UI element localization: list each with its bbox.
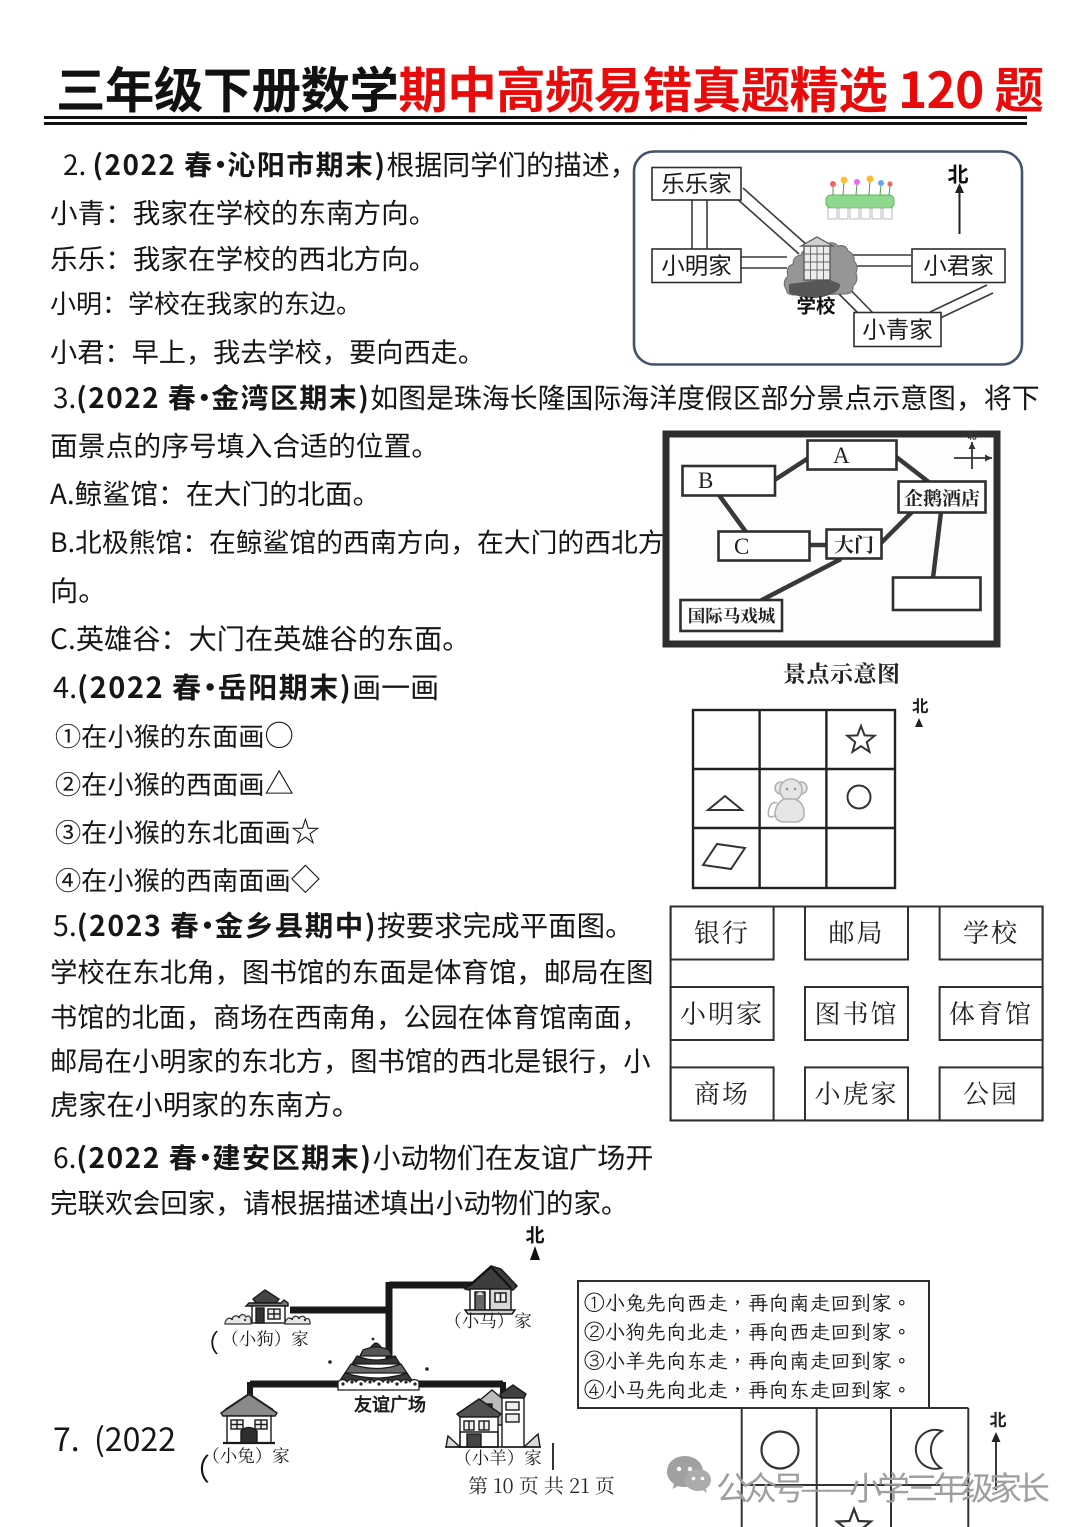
svg-text:体育馆: 体育馆 <box>949 994 1033 1031</box>
svg-text:（小马）家: （小马）家 <box>444 1308 532 1333</box>
svg-text:A: A <box>833 437 850 470</box>
svg-text:公园: 公园 <box>963 1074 1019 1111</box>
svg-text:C: C <box>734 528 749 561</box>
svg-text:小君家: 小君家 <box>923 247 994 281</box>
svg-text:友谊广场: 友谊广场 <box>354 1391 426 1417</box>
svg-text:银行: 银行 <box>694 913 750 950</box>
svg-text:企鹅酒店: 企鹅酒店 <box>904 484 980 511</box>
svg-text:大门: 大门 <box>834 529 874 558</box>
svg-text:国际马戏城: 国际马戏城 <box>688 603 776 628</box>
svg-text:学校: 学校 <box>796 290 836 319</box>
svg-text:北: 北 <box>912 693 929 717</box>
svg-text:学校: 学校 <box>963 913 1019 950</box>
svg-text:乐乐家: 乐乐家 <box>661 165 732 199</box>
svg-text:小明家: 小明家 <box>661 247 732 281</box>
svg-text:小青家: 小青家 <box>862 311 933 345</box>
svg-text:（小狗）家: （小狗）家 <box>221 1326 309 1351</box>
svg-text:北: 北 <box>990 1406 1007 1431</box>
svg-text:小明家: 小明家 <box>680 994 764 1031</box>
svg-text:北: 北 <box>525 1222 544 1248</box>
svg-text:（小羊）家: （小羊）家 <box>454 1445 542 1470</box>
svg-text:（小兔）家: （小兔）家 <box>202 1443 290 1468</box>
svg-text:图书馆: 图书馆 <box>814 994 898 1031</box>
svg-text:小虎家: 小虎家 <box>814 1074 898 1111</box>
svg-text:B: B <box>698 462 713 495</box>
svg-text:北: 北 <box>967 429 976 442</box>
svg-text:商场: 商场 <box>694 1074 750 1111</box>
svg-text:北: 北 <box>948 159 969 189</box>
svg-text:邮局: 邮局 <box>828 913 884 950</box>
